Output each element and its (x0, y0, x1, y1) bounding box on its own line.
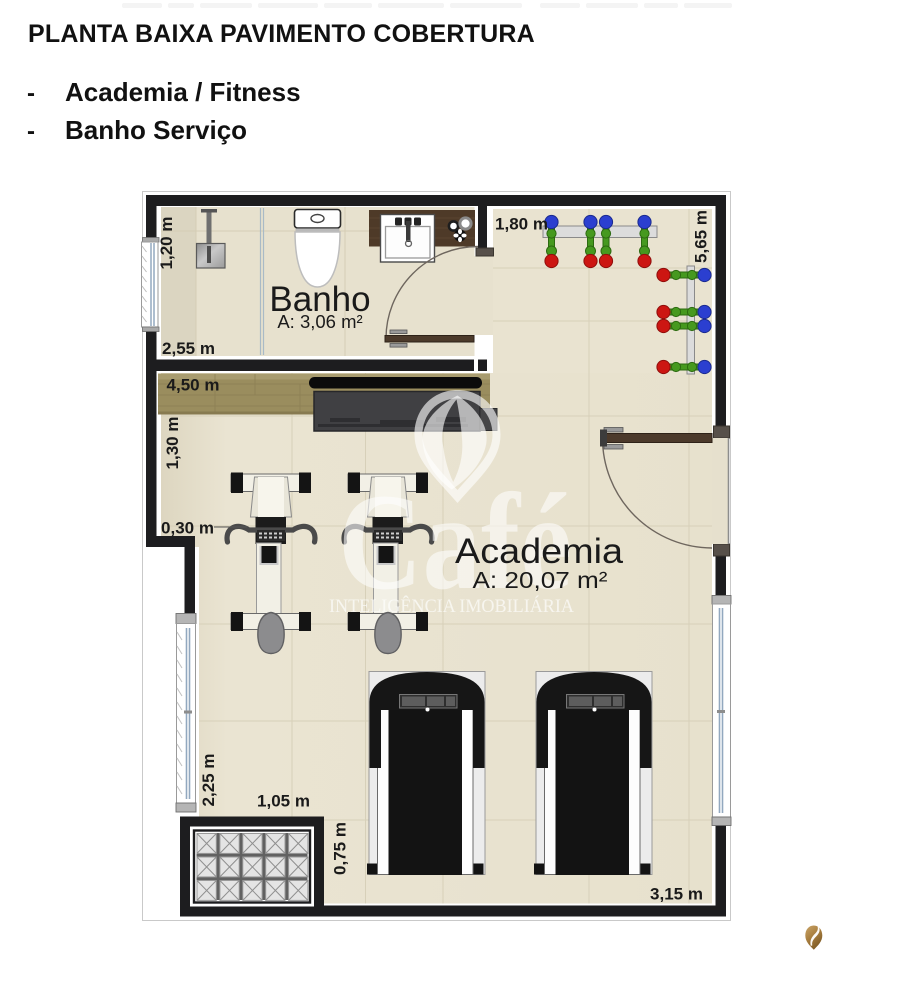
svg-text:Academia / Fitness: Academia / Fitness (65, 77, 301, 107)
svg-text:1,30 m: 1,30 m (163, 417, 182, 470)
svg-text:Academia: Academia (455, 532, 624, 571)
svg-text:1,80 m: 1,80 m (495, 215, 548, 234)
svg-text:1,05 m: 1,05 m (257, 792, 310, 811)
svg-text:PLANTA BAIXA PAVIMENTO COBERTU: PLANTA BAIXA PAVIMENTO COBERTURA (28, 20, 535, 48)
svg-text:4,50 m: 4,50 m (167, 376, 220, 395)
svg-text:2,25 m: 2,25 m (199, 754, 218, 807)
svg-text:2,55 m: 2,55 m (162, 339, 215, 358)
svg-text:-: - (27, 118, 35, 145)
svg-text:1,20 m: 1,20 m (157, 217, 176, 270)
svg-text:Banho Serviço: Banho Serviço (65, 115, 247, 145)
svg-text:A: 20,07 m²: A: 20,07 m² (473, 567, 608, 593)
svg-text:A: 3,06 m²: A: 3,06 m² (277, 311, 362, 332)
svg-text:-: - (27, 80, 35, 107)
svg-text:0,75 m: 0,75 m (331, 822, 350, 875)
svg-text:INTELIGÊNCIA IMOBILIÁRIA: INTELIGÊNCIA IMOBILIÁRIA (329, 595, 574, 617)
svg-text:0,30 m: 0,30 m (161, 519, 214, 538)
svg-text:5,65 m: 5,65 m (692, 210, 711, 263)
svg-text:3,15 m: 3,15 m (650, 885, 703, 904)
